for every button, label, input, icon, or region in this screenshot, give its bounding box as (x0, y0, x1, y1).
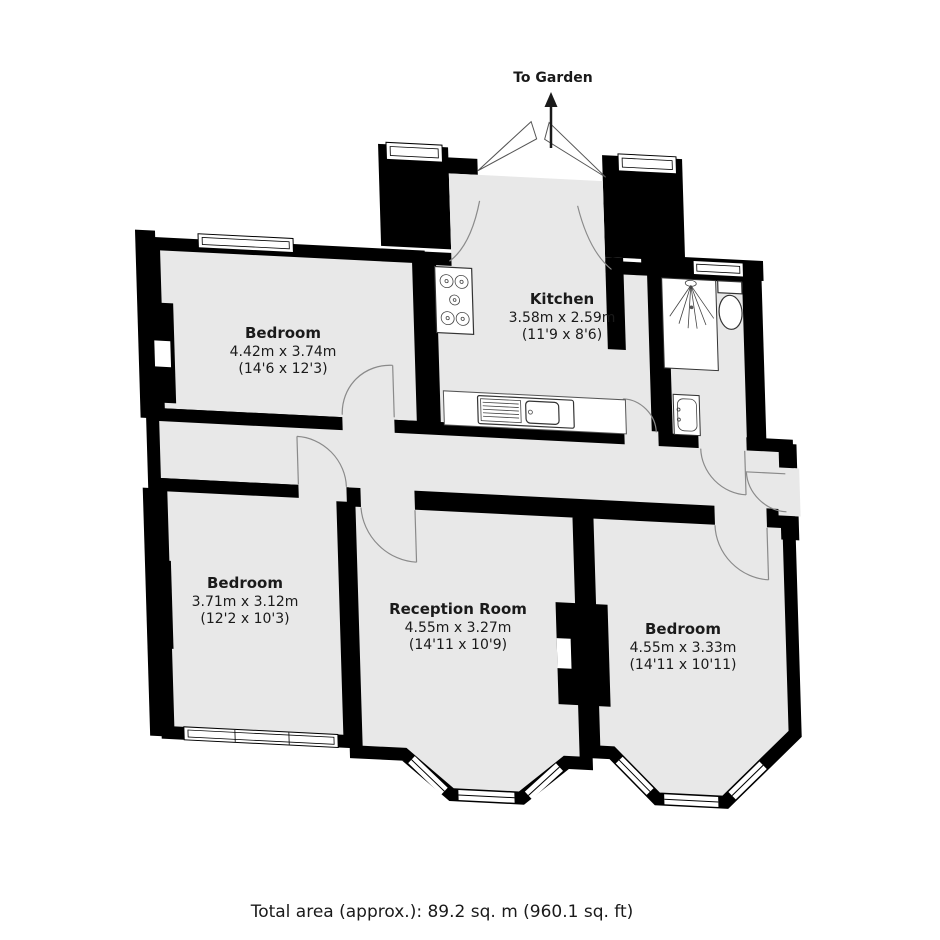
svg-text:4.55m x 3.27m: 4.55m x 3.27m (405, 620, 512, 636)
window-bathroom (693, 261, 743, 278)
label-reception: Reception Room 4.55m x 3.27m (14'11 x 10… (389, 600, 527, 653)
svg-text:Bedroom: Bedroom (207, 574, 283, 592)
shower-icon (662, 278, 719, 371)
svg-text:Reception Room: Reception Room (389, 600, 527, 618)
vestibule-floor (449, 173, 606, 274)
svg-text:Kitchen: Kitchen (530, 290, 594, 308)
total-area-label: Total area (approx.): 89.2 sq. m (960.1 … (250, 902, 634, 922)
label-bedroom-2: Bedroom 3.71m x 3.12m (12'2 x 10'3) (192, 574, 299, 627)
svg-text:3.71m x 3.12m: 3.71m x 3.12m (192, 594, 299, 610)
floorplan-canvas: To Garden Bedroom 4.42m x 3.74m (14'6 x … (0, 0, 940, 940)
garden-door-flaps (476, 119, 606, 177)
svg-text:(14'11 x 10'11): (14'11 x 10'11) (629, 657, 736, 673)
svg-text:3.58m x 2.59m: 3.58m x 2.59m (509, 310, 616, 326)
svg-text:Bedroom: Bedroom (645, 620, 721, 638)
basin-icon (673, 394, 700, 435)
label-bedroom-1: Bedroom 4.42m x 3.74m (14'6 x 12'3) (230, 324, 337, 377)
to-garden-label: To Garden (513, 70, 593, 86)
hob-icon (435, 267, 474, 335)
toilet-icon (718, 281, 743, 330)
window-alcove-right (618, 154, 677, 174)
label-bedroom-3: Bedroom 4.55m x 3.33m (14'11 x 10'11) (629, 620, 736, 673)
arrow-up-icon (545, 92, 558, 107)
floorplan-page: To Garden Bedroom 4.42m x 3.74m (14'6 x … (0, 0, 940, 940)
svg-text:(11'9 x 8'6): (11'9 x 8'6) (522, 327, 602, 343)
chimney-breast-bedroom-2 (153, 560, 174, 649)
window-alcove-left (386, 142, 443, 162)
svg-text:4.42m x 3.74m: 4.42m x 3.74m (230, 344, 337, 360)
svg-text:4.55m x 3.33m: 4.55m x 3.33m (630, 640, 737, 656)
svg-text:(12'2 x 10'3): (12'2 x 10'3) (200, 611, 289, 627)
svg-text:(14'11 x 10'9): (14'11 x 10'9) (409, 637, 507, 653)
svg-text:Bedroom: Bedroom (245, 324, 321, 342)
floorplan-drawing (131, 102, 809, 813)
svg-text:(14'6 x 12'3): (14'6 x 12'3) (238, 361, 327, 377)
